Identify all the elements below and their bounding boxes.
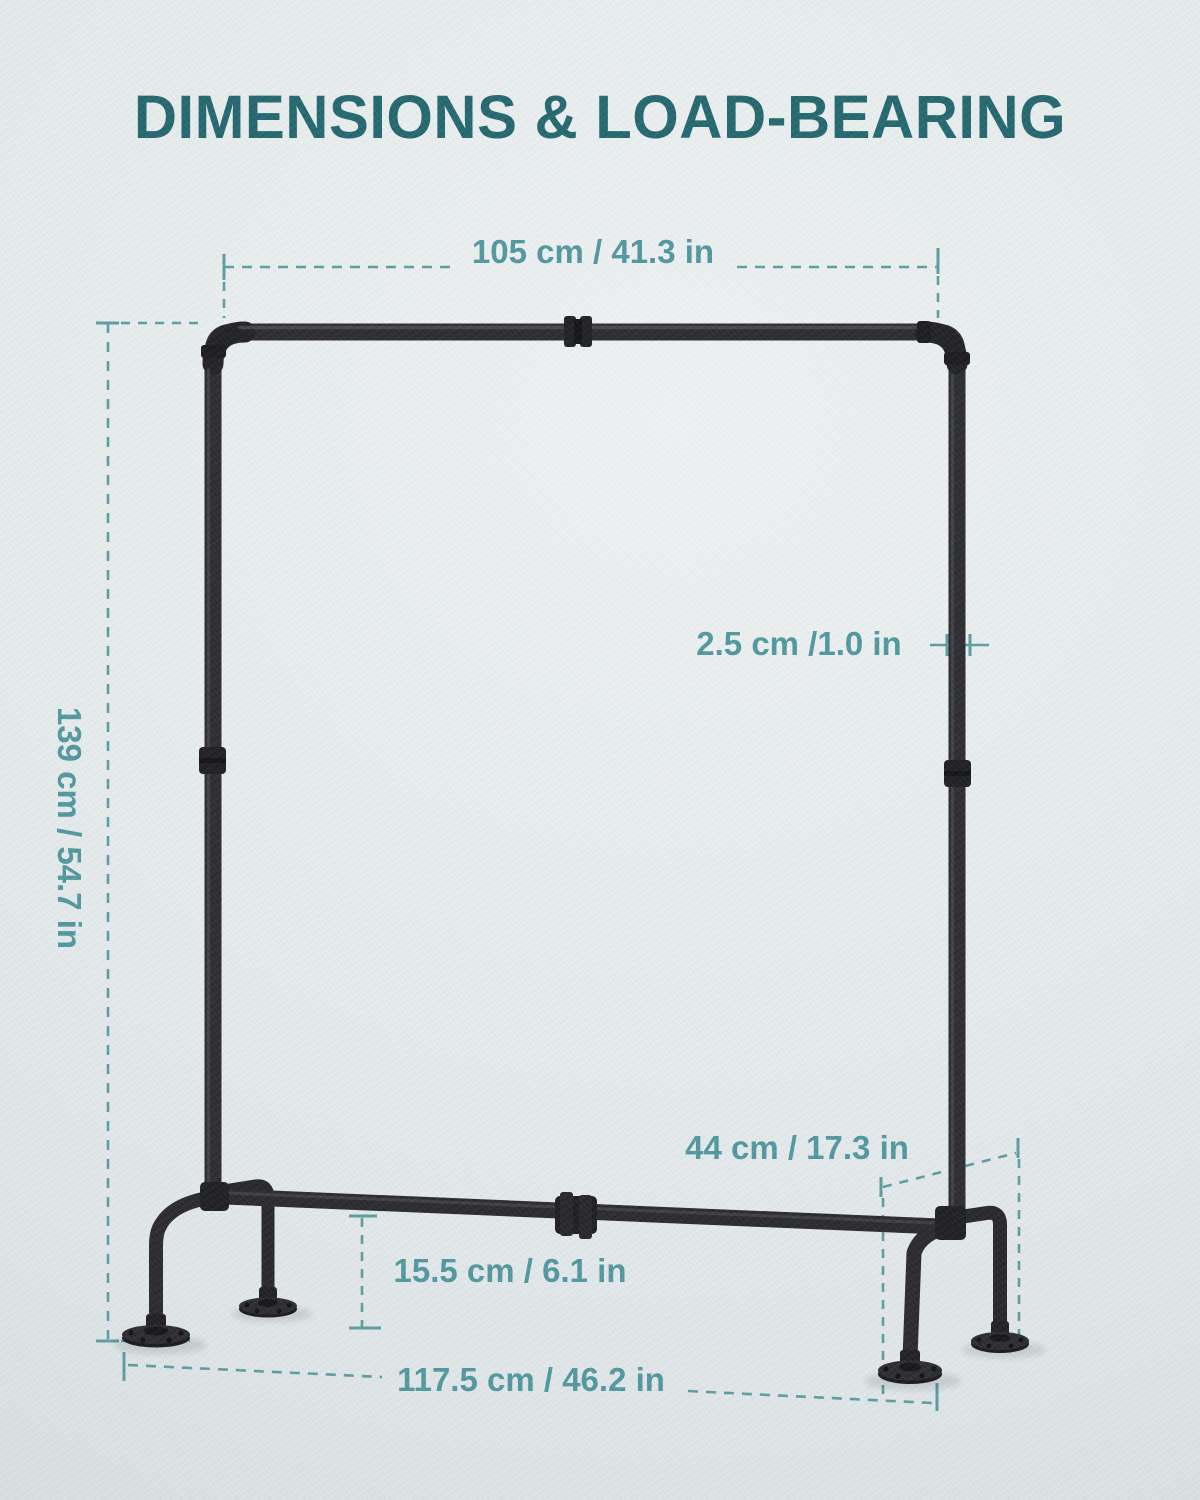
front-right-foot xyxy=(878,1350,942,1384)
back-right-foot xyxy=(971,1321,1029,1353)
front-right-leg xyxy=(910,1227,950,1358)
right-elbow-collar-h xyxy=(917,321,931,343)
dimension-bar-height-lines xyxy=(349,1216,381,1328)
dimension-label-depth: 44 cm / 17.3 in xyxy=(685,1129,909,1167)
dimension-label-bar-height: 15.5 cm / 6.1 in xyxy=(394,1252,627,1290)
back-left-foot xyxy=(239,1287,297,1318)
bottom-bar-union xyxy=(555,1192,597,1239)
right-cross-fitting xyxy=(935,1206,966,1240)
dimension-label-base-width: 117.5 cm / 46.2 in xyxy=(397,1361,665,1399)
dimension-lines xyxy=(96,248,1019,1411)
front-left-foot xyxy=(122,1314,190,1348)
left-elbow-collar xyxy=(201,345,226,358)
dimension-label-top-width: 105 cm / 41.3 in xyxy=(472,233,714,271)
front-left-leg xyxy=(156,1197,214,1322)
right-elbow-collar xyxy=(944,352,970,365)
pipe-fittings xyxy=(199,316,971,1240)
dimension-label-pipe-diameter: 2.5 cm /1.0 in xyxy=(696,625,901,663)
top-bar-and-uprights xyxy=(213,332,957,1225)
left-tee-fitting xyxy=(200,1182,229,1211)
dimension-label-height: 139 cm / 54.7 in xyxy=(50,707,88,949)
product-dimension-infographic: DIMENSIONS & LOAD-BEARING xyxy=(0,0,1200,1500)
top-bar-union xyxy=(564,316,592,347)
dimension-height-lines xyxy=(96,323,203,1341)
